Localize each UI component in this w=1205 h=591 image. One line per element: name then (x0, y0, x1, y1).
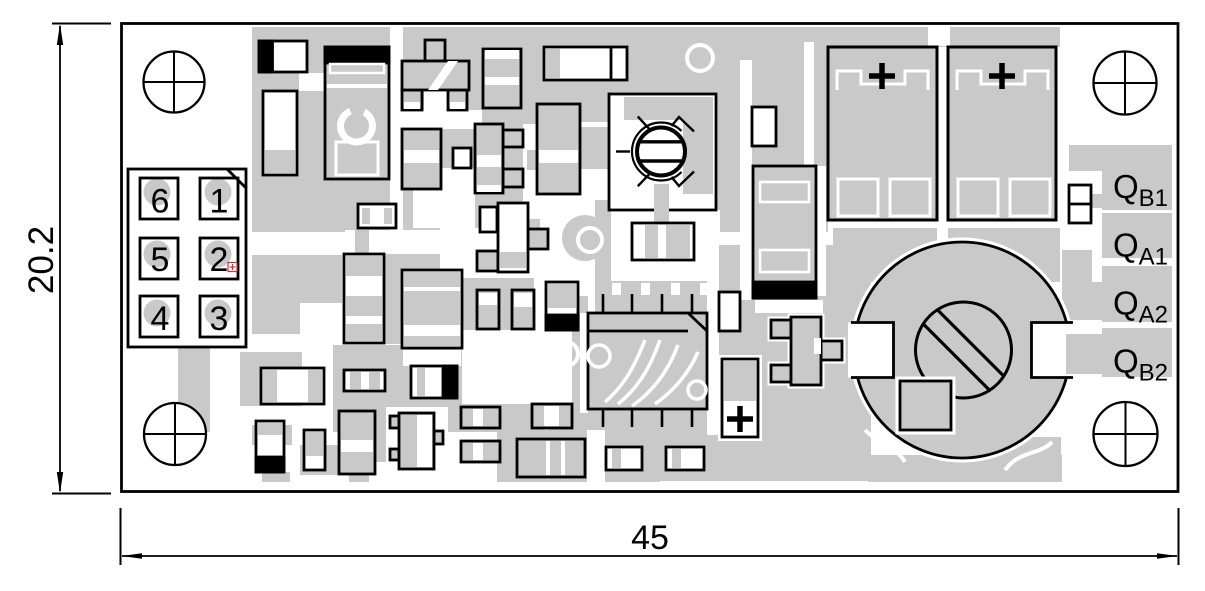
svg-text:4: 4 (151, 300, 170, 338)
svg-text:20.2: 20.2 (22, 226, 61, 294)
svg-text:6: 6 (151, 183, 170, 221)
svg-text:3: 3 (210, 300, 229, 338)
svg-text:5: 5 (151, 241, 170, 279)
svg-text:45: 45 (631, 519, 669, 557)
svg-text:2: 2 (210, 241, 229, 279)
svg-text:1: 1 (210, 183, 229, 221)
